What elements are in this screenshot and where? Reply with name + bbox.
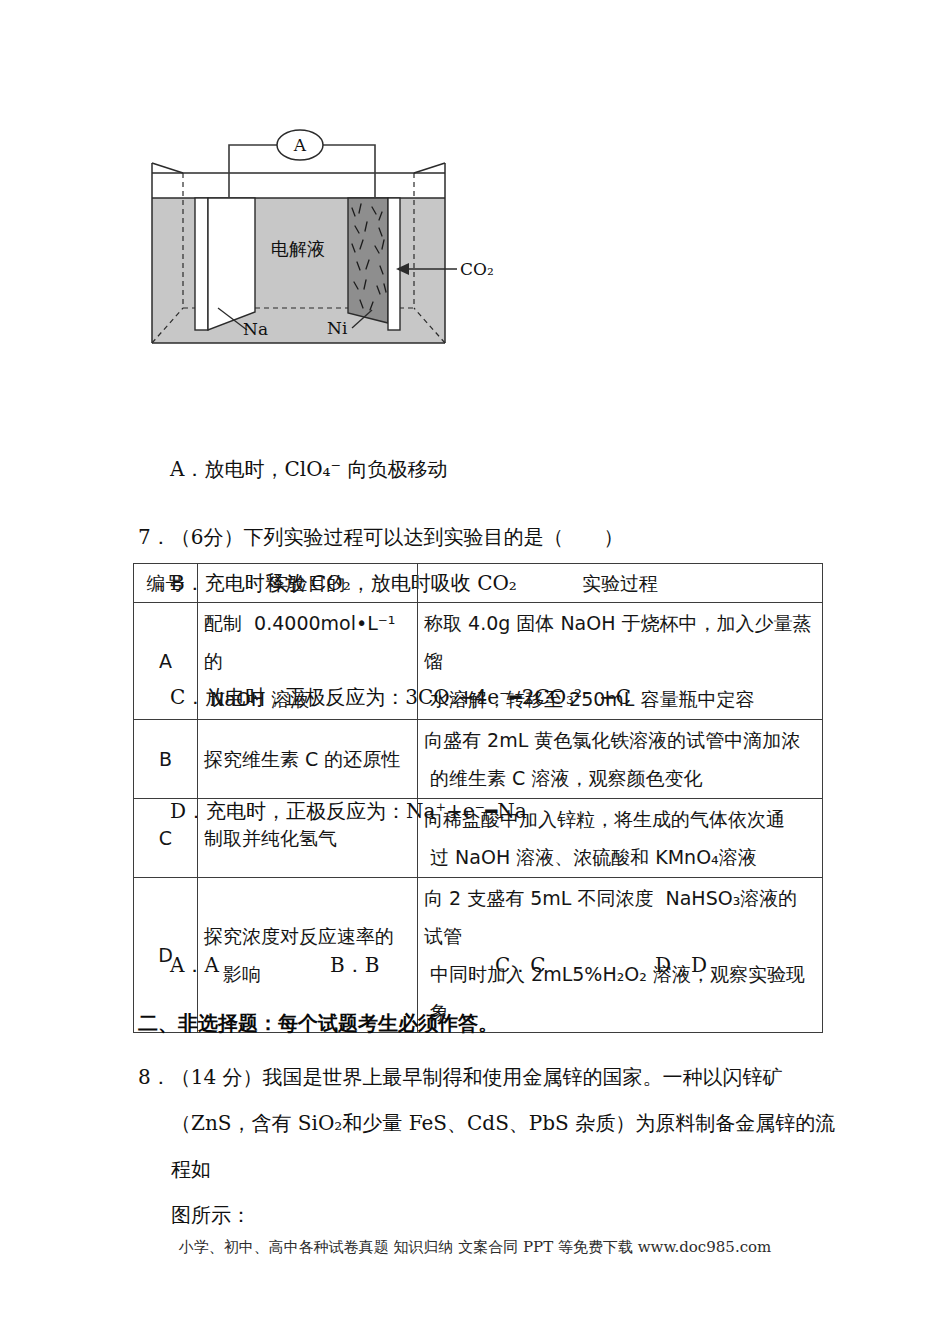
table-row: B 探究维生素 C 的还原性 向盛有 2mL 黄色氯化铁溶液的试管中滴加浓 的维… xyxy=(134,720,823,799)
exam-page: A 电解液 Na Ni CO₂ A．放电时，ClO₄⁻ 向负极移动 B．充电时释… xyxy=(0,0,950,1344)
table-header-row: 编号 实验目的 实验过程 xyxy=(134,564,823,603)
col-header-purpose: 实验目的 xyxy=(198,564,418,603)
option-a: A．放电时，ClO₄⁻ 向负极移动 xyxy=(170,450,790,488)
na-label: Na xyxy=(243,319,268,339)
page-footer: 小学、初中、高中各种试卷真题 知识归纳 文案合同 PPT 等免费下载 www.d… xyxy=(0,1238,950,1257)
answer-choice-d: D．D xyxy=(655,952,707,978)
row-b-id: B xyxy=(134,720,198,799)
row-b-purpose: 探究维生素 C 的还原性 xyxy=(198,720,418,799)
question7-answer-choices: A．A B．B C．C D．D xyxy=(170,952,830,978)
col-header-procedure: 实验过程 xyxy=(418,564,823,603)
table-row: C 制取并纯化氢气 向稀盐酸中加入锌粒，将生成的气体依次通 过 NaOH 溶液、… xyxy=(134,799,823,878)
section2-header: 二、非选择题：每个试题考生必须作答。 xyxy=(138,1010,838,1037)
row-a-procedure: 称取 4.0g 固体 NaOH 于烧杯中，加入少量蒸馏 水溶解，转移至 250m… xyxy=(418,603,823,720)
question7-stem: 7．（6分）下列实验过程可以达到实验目的是（ ） xyxy=(138,522,838,552)
gas-label: CO₂ xyxy=(460,259,494,279)
sodium-electrode xyxy=(195,198,255,330)
question8-stem: 8．（14 分）我国是世界上最早制得和使用金属锌的国家。一种以闪锌矿 （ZnS，… xyxy=(138,1054,840,1238)
circuit-diagram: A 电解液 Na Ni CO₂ xyxy=(146,122,511,352)
ni-label: Ni xyxy=(327,318,348,338)
row-a-purpose: 配制 0.4000mol•L⁻¹的 NaOH 溶液 xyxy=(198,603,418,720)
answer-choice-c: C．C xyxy=(495,952,655,978)
electrolyte-label: 电解液 xyxy=(271,238,325,259)
col-header-id: 编号 xyxy=(134,564,198,603)
answer-choice-b: B．B xyxy=(330,952,495,978)
nickel-electrode xyxy=(348,198,400,330)
table-row: A 配制 0.4000mol•L⁻¹的 NaOH 溶液 称取 4.0g 固体 N… xyxy=(134,603,823,720)
cell-diagram-svg: A 电解液 Na Ni CO₂ xyxy=(146,122,511,352)
ammeter-label: A xyxy=(293,135,307,155)
answer-choice-a: A．A xyxy=(170,952,330,978)
row-c-purpose: 制取并纯化氢气 xyxy=(198,799,418,878)
row-c-id: C xyxy=(134,799,198,878)
row-b-procedure: 向盛有 2mL 黄色氯化铁溶液的试管中滴加浓 的维生素 C 溶液，观察颜色变化 xyxy=(418,720,823,799)
row-a-id: A xyxy=(134,603,198,720)
ammeter-icon: A xyxy=(277,130,323,160)
row-c-procedure: 向稀盐酸中加入锌粒，将生成的气体依次通 过 NaOH 溶液、浓硫酸和 KMnO₄… xyxy=(418,799,823,878)
